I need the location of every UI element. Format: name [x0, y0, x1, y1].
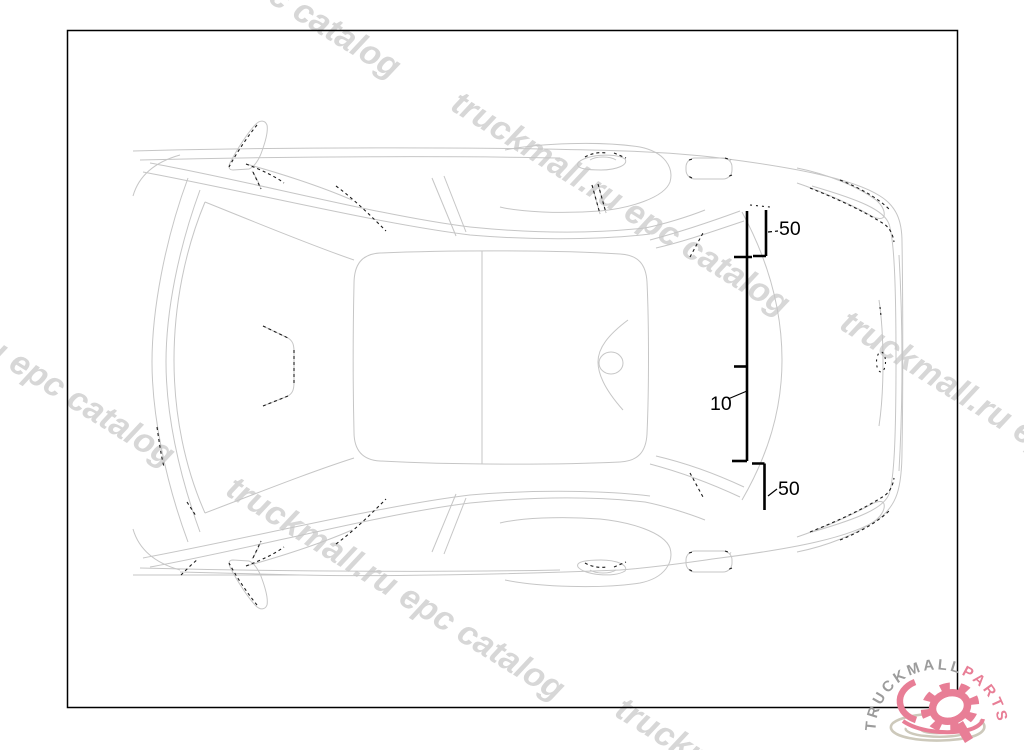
svg-text:50: 50: [778, 478, 800, 500]
svg-text:10: 10: [710, 393, 732, 415]
svg-text:50: 50: [779, 218, 801, 240]
svg-text:truckmall.ru epc catalog: truckmall.ru epc catalog: [834, 303, 1024, 543]
svg-text:truckmall.ru epc catalog: truckmall.ru epc catalog: [0, 235, 182, 475]
svg-text:truckmall.ru epc catalog: truckmall.ru epc catalog: [56, 0, 408, 86]
svg-text:truckmall.ru epc catalog: truckmall.ru epc catalog: [445, 84, 797, 324]
svg-text:truckmall.ru epc catalog: truckmall.ru epc catalog: [220, 469, 572, 709]
